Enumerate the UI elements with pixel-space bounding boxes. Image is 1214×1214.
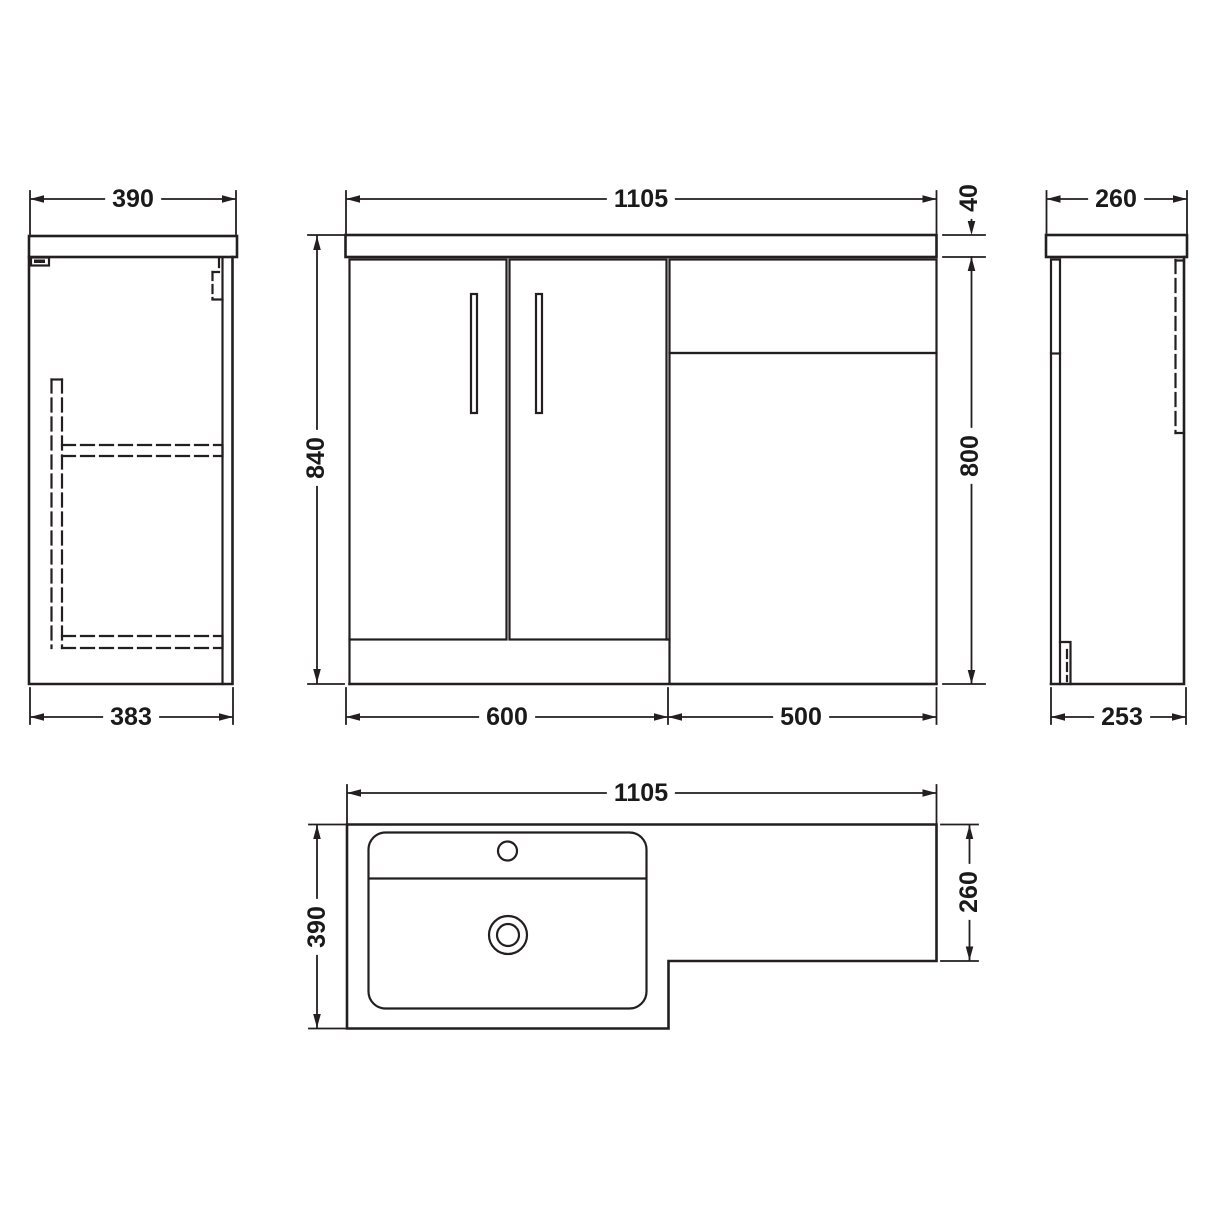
hinge-plate <box>31 258 49 266</box>
dim-text-front-cabinet-height: 800 <box>956 428 984 484</box>
dim-text-plan-wc-return-depth: 260 <box>955 864 983 920</box>
vanity-door-right <box>510 260 667 640</box>
plan-view <box>309 785 978 1029</box>
dim-text-left-cabinet-depth: 383 <box>103 703 159 731</box>
hidden-shelf <box>62 445 223 456</box>
dim-text-right-counter-depth: 260 <box>1088 185 1144 213</box>
right-side-view <box>1046 191 1187 724</box>
technical-drawing-page: 390 383 1105 840 40 800 600 500 260 253 … <box>0 0 1214 1214</box>
countertop-front <box>346 235 937 257</box>
dim-text-right-cabinet-depth: 253 <box>1094 703 1150 731</box>
wc-end-panel <box>1051 257 1184 684</box>
dim-text-front-overall-width: 1105 <box>607 185 675 213</box>
dim-text-plan-overall-width: 1105 <box>607 779 675 807</box>
plinth <box>350 640 937 685</box>
dim-text-plan-counter-depth: 390 <box>303 899 331 955</box>
dim-text-left-counter-depth: 390 <box>105 185 161 213</box>
countertop-left-end <box>29 236 237 257</box>
door-handle-right <box>536 294 542 413</box>
front-view <box>308 191 985 724</box>
countertop-right-end <box>1046 235 1187 257</box>
hidden-base-panel <box>62 636 223 648</box>
wc-front-panel <box>670 353 937 684</box>
dim-text-front-wc-width: 500 <box>773 703 829 731</box>
plinth-step <box>1060 642 1071 684</box>
hidden-waste-pipe <box>52 380 63 649</box>
basin-rim <box>369 833 647 1009</box>
wc-top-panel <box>670 260 937 354</box>
dim-text-front-vanity-width: 600 <box>479 703 535 731</box>
cabinet-left-end <box>29 257 233 684</box>
door-handle-left <box>471 294 477 413</box>
dim-text-front-overall-height: 840 <box>302 430 330 486</box>
drawing-canvas <box>0 0 1214 1214</box>
dim-text-front-counter-thickness: 40 <box>955 177 983 219</box>
left-side-view <box>29 191 237 724</box>
vanity-door-left <box>350 260 507 640</box>
countertop-fixing-hidden-detail <box>213 259 223 300</box>
